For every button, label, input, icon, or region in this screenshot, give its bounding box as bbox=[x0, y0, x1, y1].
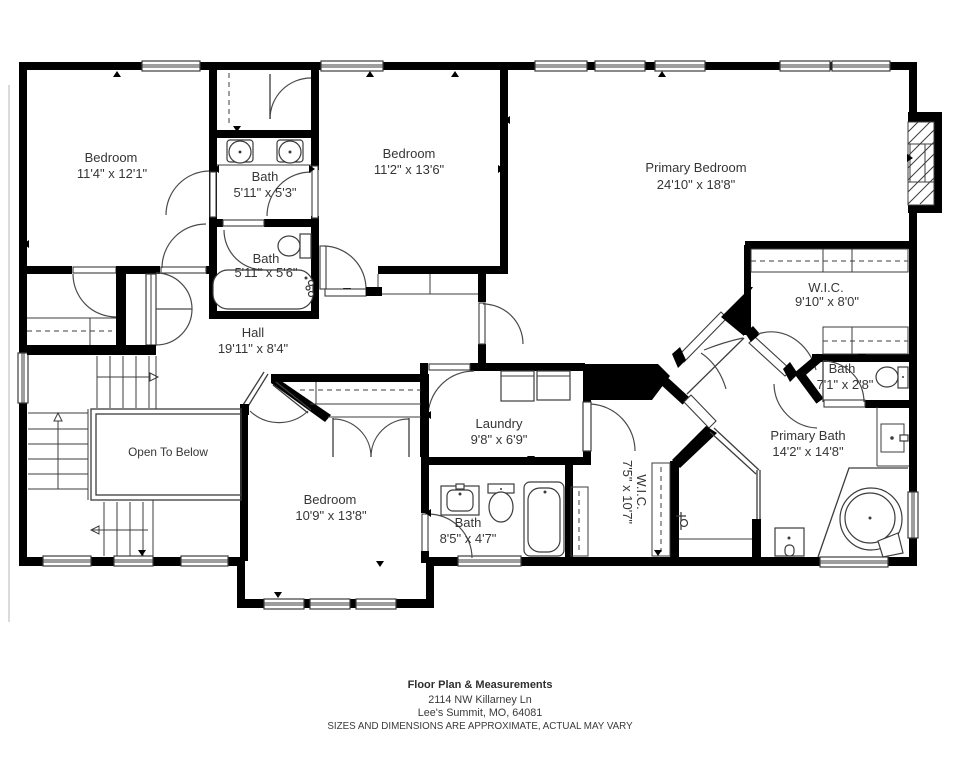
svg-text:Lee's Summit, MO, 64081: Lee's Summit, MO, 64081 bbox=[418, 707, 542, 719]
svg-text:Primary Bedroom: Primary Bedroom bbox=[645, 160, 746, 175]
svg-text:Bedroom: Bedroom bbox=[85, 150, 138, 165]
svg-text:Bedroom: Bedroom bbox=[304, 492, 357, 507]
svg-text:2114 NW Killarney Ln: 2114 NW Killarney Ln bbox=[428, 694, 532, 706]
svg-text:19'11" x 8'4": 19'11" x 8'4" bbox=[218, 341, 289, 356]
svg-text:Bath: Bath bbox=[252, 169, 279, 184]
svg-text:Laundry: Laundry bbox=[476, 416, 523, 431]
svg-text:5'11" x 5'6": 5'11" x 5'6" bbox=[234, 265, 297, 280]
svg-text:Primary Bath: Primary Bath bbox=[770, 428, 845, 443]
svg-text:5'11" x 5'3": 5'11" x 5'3" bbox=[233, 185, 296, 200]
svg-text:W.I.C.: W.I.C. bbox=[634, 474, 649, 509]
svg-text:11'2" x 13'6": 11'2" x 13'6" bbox=[374, 162, 445, 177]
svg-text:Bath: Bath bbox=[253, 251, 280, 266]
svg-text:Floor Plan & Measurements: Floor Plan & Measurements bbox=[408, 679, 553, 691]
svg-text:W.I.C.: W.I.C. bbox=[808, 280, 843, 295]
svg-text:24'10" x 18'8": 24'10" x 18'8" bbox=[657, 177, 736, 192]
svg-text:7'5" x 10'7": 7'5" x 10'7" bbox=[620, 460, 635, 524]
svg-text:Open To Below: Open To Below bbox=[128, 445, 208, 459]
svg-text:9'8" x 6'9": 9'8" x 6'9" bbox=[471, 432, 528, 447]
svg-text:7'1" x 2'8": 7'1" x 2'8" bbox=[817, 377, 874, 392]
svg-text:Bath: Bath bbox=[829, 361, 856, 376]
svg-text:9'10" x 8'0": 9'10" x 8'0" bbox=[795, 294, 859, 309]
svg-text:Bedroom: Bedroom bbox=[383, 146, 436, 161]
svg-text:8'5" x 4'7": 8'5" x 4'7" bbox=[440, 531, 497, 546]
svg-text:SIZES AND DIMENSIONS ARE APPRO: SIZES AND DIMENSIONS ARE APPROXIMATE, AC… bbox=[327, 721, 633, 732]
svg-text:14'2" x 14'8": 14'2" x 14'8" bbox=[772, 444, 844, 459]
svg-text:Hall: Hall bbox=[242, 325, 265, 340]
svg-text:11'4" x 12'1": 11'4" x 12'1" bbox=[77, 166, 148, 181]
svg-text:10'9" x 13'8": 10'9" x 13'8" bbox=[295, 508, 367, 523]
svg-text:Bath: Bath bbox=[455, 515, 482, 530]
